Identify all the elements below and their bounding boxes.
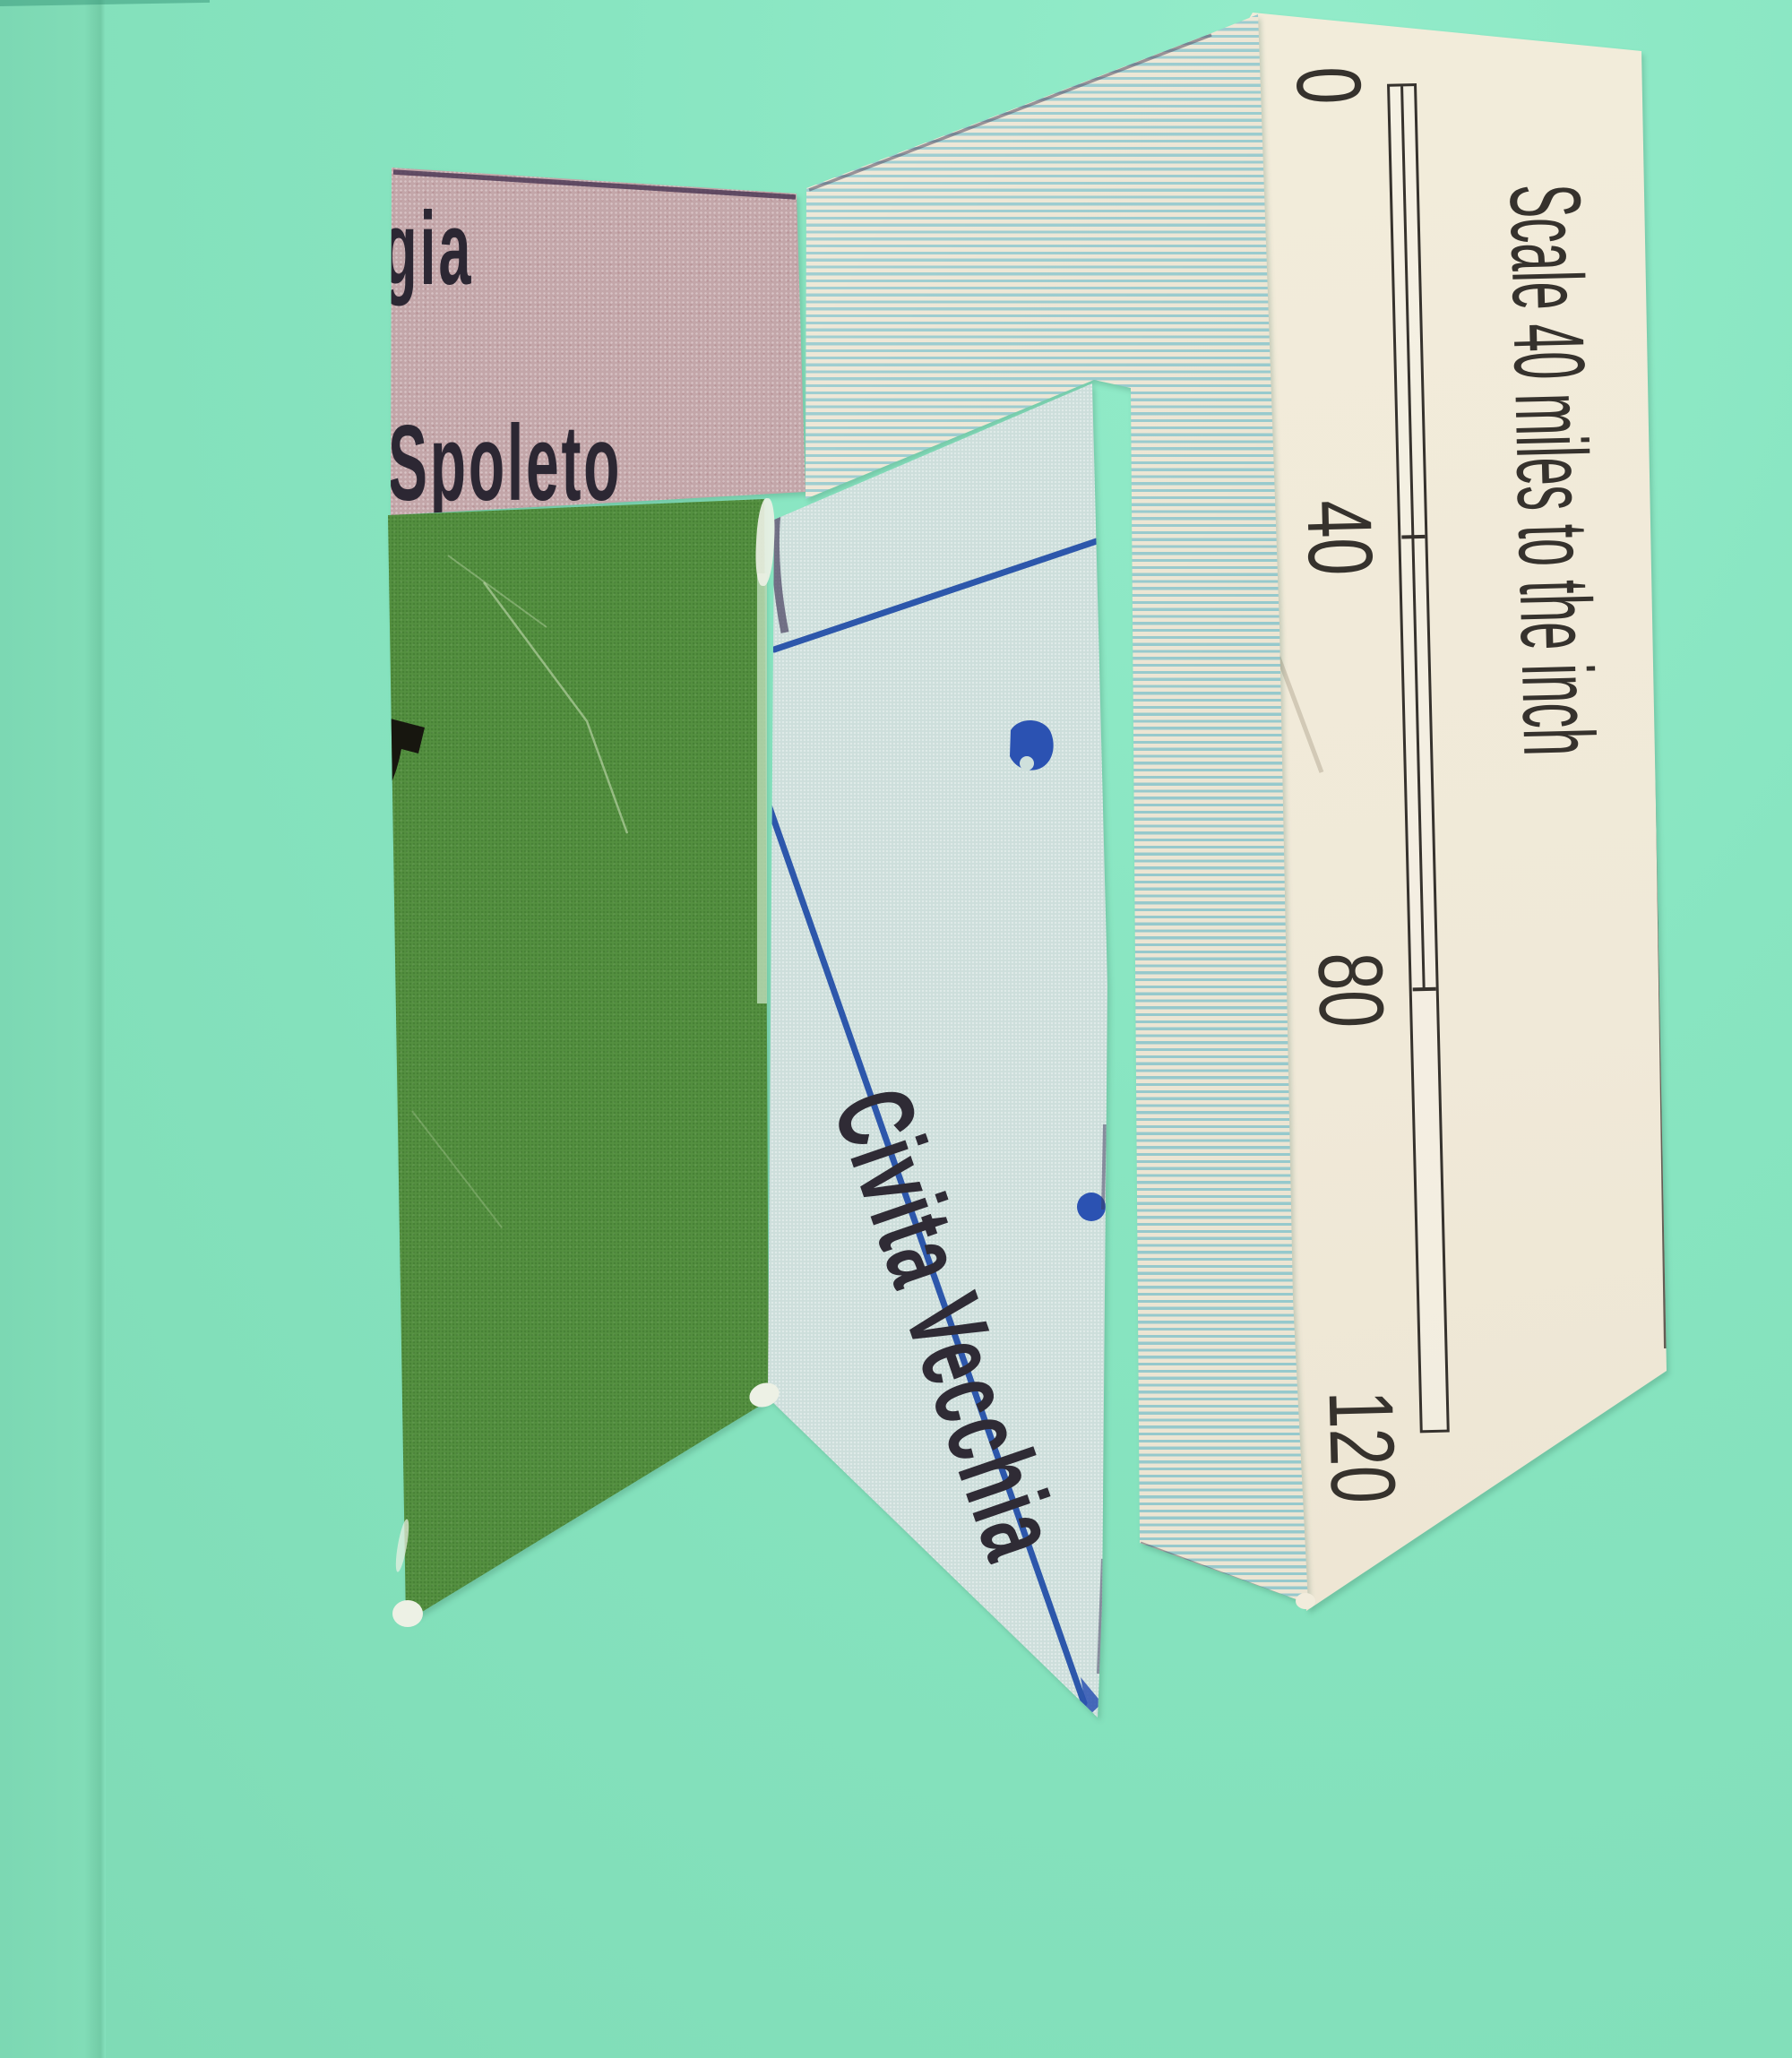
sea-fragment-shadow: Civita Vecchia: [0, 0, 1792, 2058]
torn-paper-bit: [393, 1519, 411, 1573]
map-blob: [1010, 720, 1054, 771]
pink-fragment-shadow: gia Spoleto: [0, 0, 1792, 2058]
scale-bar-tick-40: [1401, 535, 1425, 538]
striped-fragment-shadow: [0, 0, 1792, 2058]
scale-bar-divider: [1400, 86, 1426, 989]
torn-paper-bit: [754, 498, 776, 587]
route-line-lower: [768, 803, 1084, 1703]
green-map-fragment: [0, 0, 1792, 2058]
striped-fragment-edges: [0, 0, 1792, 2058]
paper-sliver: [757, 573, 767, 1003]
torn-paper-bit: [392, 1600, 423, 1627]
backing-sheet-left-edge: [0, 0, 106, 2058]
paper-crease: [484, 582, 627, 833]
boundary-glyph: [368, 717, 425, 798]
scale-map-fragment: Scale 40 miles to the inch 0 40 80 120: [0, 0, 1792, 2058]
rotated-scale-group: Scale 40 miles to the inch 0 40 80 120: [1408, 83, 1454, 1606]
paper-crease: [412, 1111, 502, 1227]
place-label-civita-vecchia: Civita Vecchia: [809, 1073, 1086, 1574]
cut-edge: [1141, 1543, 1306, 1605]
route-line-upper: [774, 538, 1105, 650]
scale-tick-label-40: 40: [1289, 457, 1390, 618]
scale-tick-label-0: 0: [1279, 4, 1379, 166]
paper-crease: [448, 555, 547, 627]
paper-crease: [1247, 573, 1322, 772]
green-fragment-shadow: [0, 0, 1792, 2058]
torn-paper-bit: [746, 1379, 783, 1411]
map-dot: [1077, 1193, 1106, 1221]
printed-border: [809, 35, 1211, 190]
scale-bar: [1387, 83, 1450, 1433]
green-fragment-marks: [0, 0, 1792, 2058]
scale-fragment-marks: [0, 0, 1792, 2058]
striped-highlight: [0, 0, 1792, 2058]
edge-mark: [1103, 1124, 1105, 1210]
scale-tick-label-120: 120: [1312, 1366, 1412, 1528]
scale-fragment-shadow: Scale 40 miles to the inch 0 40 80 120: [0, 0, 1792, 2058]
tip-mark: [1081, 1677, 1102, 1717]
scale-tick-label-80: 80: [1301, 909, 1401, 1071]
place-label-partial-perugia: gia: [382, 188, 473, 308]
scale-bar-tick-80: [1413, 987, 1436, 991]
printed-border: [1647, 70, 1666, 1348]
sea-fragment-marks: [0, 0, 1792, 2058]
collage-photo: gia Spoleto Scale 40 miles to the inch: [0, 0, 1792, 2058]
edge-mark: [1098, 1559, 1103, 1674]
scale-caption: Scale 40 miles to the inch: [1495, 183, 1609, 757]
torn-paper-bit: [1296, 1593, 1315, 1609]
place-label-spoleto: Spoleto: [388, 401, 622, 525]
striped-map-fragment: [0, 0, 1792, 2058]
sea-map-fragment: Civita Vecchia: [0, 0, 1792, 2058]
pink-printed-border: [0, 0, 1792, 2058]
pink-map-fragment: gia Spoleto: [0, 0, 1792, 2058]
printed-border-corner: [775, 488, 785, 633]
map-blob-notch: [1020, 756, 1034, 771]
